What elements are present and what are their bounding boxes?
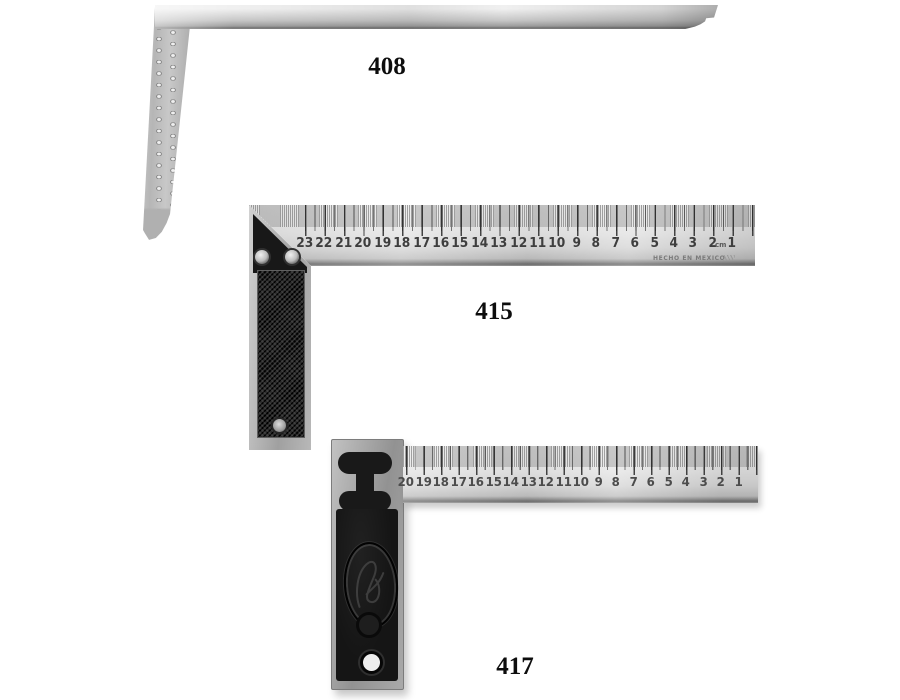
scale-number: 10: [573, 475, 589, 489]
scale-number: 20: [354, 236, 372, 251]
scale-number: 18: [393, 236, 411, 251]
scale-number: 7: [606, 236, 624, 251]
scale-number: 16: [468, 475, 484, 489]
model-label-415: 415: [454, 298, 534, 326]
scale-number: 9: [567, 236, 585, 251]
origin-stamp: HECHO EN MEXICO: [653, 255, 725, 262]
scale-number: 5: [645, 236, 663, 251]
scale-number: 4: [665, 236, 683, 251]
model-label-417: 417: [475, 653, 555, 681]
scale-number: 23: [296, 236, 314, 251]
rivet-icon: [255, 250, 269, 264]
scale-number: 16: [432, 236, 450, 251]
model-label-408: 408: [347, 53, 427, 81]
scale-number: 4: [678, 475, 694, 489]
scale-number: 11: [529, 236, 547, 251]
scale-numbers-row: 2019181716151413121110987654321: [397, 475, 747, 489]
scale-number: 19: [415, 475, 431, 489]
framing-square-perforated-arm: [138, 7, 192, 243]
scale-number: 9: [590, 475, 606, 489]
catalog-photo-try-squares: 408 232221201918171615141312111098765432…: [0, 0, 900, 700]
scale-number: 12: [509, 236, 527, 251]
scale-number: 8: [608, 475, 624, 489]
scale-number: 12: [538, 475, 554, 489]
scale-number: 18: [433, 475, 449, 489]
recessed-boss-icon: [356, 612, 382, 638]
scale-number: 13: [520, 475, 536, 489]
scale-number: 14: [503, 475, 519, 489]
rivet-icon: [285, 250, 299, 264]
scale-number: 6: [626, 236, 644, 251]
framing-square-blade: [155, 5, 718, 29]
handle-bone-bottom-bar: [339, 491, 391, 511]
scale-number: 10: [548, 236, 566, 251]
scale-number: 5: [660, 475, 676, 489]
scale-number: 13: [490, 236, 508, 251]
scale-number: 3: [695, 475, 711, 489]
unit-label: cm: [715, 241, 726, 249]
scale-number: 22: [315, 236, 333, 251]
italic-logo-mark-icon: [723, 255, 735, 261]
scale-numbers-row: 2322212019181716151413121110987654321: [295, 236, 742, 251]
scale-number: 2: [713, 475, 729, 489]
scale-number: 7: [625, 475, 641, 489]
scale-number: 15: [485, 475, 501, 489]
ruler-blade: 2322212019181716151413121110987654321 cm…: [249, 205, 755, 266]
hanging-hole-icon: [360, 651, 383, 674]
scale-number: 11: [555, 475, 571, 489]
scale-number: 1: [730, 475, 746, 489]
scale-number: 14: [470, 236, 488, 251]
knurled-inlay: [257, 270, 305, 438]
hanging-hole-icon: [273, 419, 286, 432]
scale-number: 19: [373, 236, 391, 251]
scale-number: 3: [684, 236, 702, 251]
scale-number: 6: [643, 475, 659, 489]
scale-number: 17: [450, 475, 466, 489]
scale-number: 21: [334, 236, 352, 251]
scale-number: 17: [412, 236, 430, 251]
ruler-blade: 2019181716151413121110987654321: [403, 446, 758, 503]
scale-number: 15: [451, 236, 469, 251]
scale-number: 20: [398, 475, 414, 489]
scale-number: 8: [587, 236, 605, 251]
